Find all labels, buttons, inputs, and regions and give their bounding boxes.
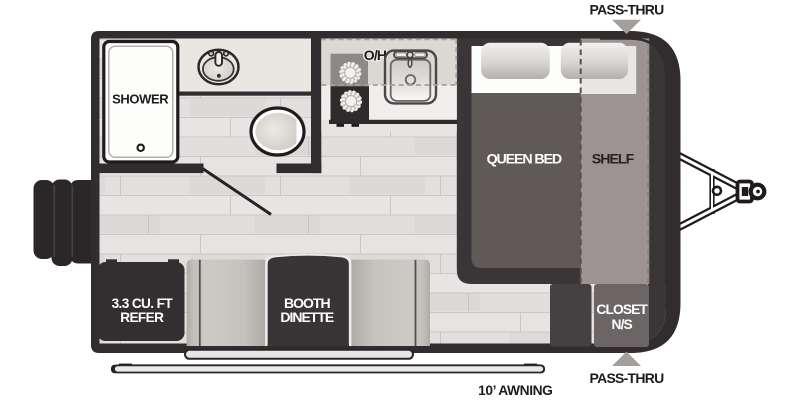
svg-text:QUEEN BED: QUEEN BED [487, 151, 562, 167]
svg-text:O/H: O/H [364, 47, 387, 63]
svg-text:CLOSET: CLOSET [596, 302, 648, 317]
svg-text:10’ AWNING: 10’ AWNING [478, 383, 552, 398]
svg-text:SHOWER: SHOWER [112, 92, 169, 107]
svg-text:REFER: REFER [120, 310, 164, 325]
svg-text:SHELF: SHELF [592, 152, 635, 168]
svg-text:DINETTE: DINETTE [280, 309, 334, 325]
svg-text:N/S: N/S [612, 317, 633, 332]
svg-text:3.3 CU. FT: 3.3 CU. FT [112, 296, 174, 311]
svg-text:PASS-THRU: PASS-THRU [590, 370, 665, 386]
svg-text:PASS-THRU: PASS-THRU [590, 1, 665, 17]
